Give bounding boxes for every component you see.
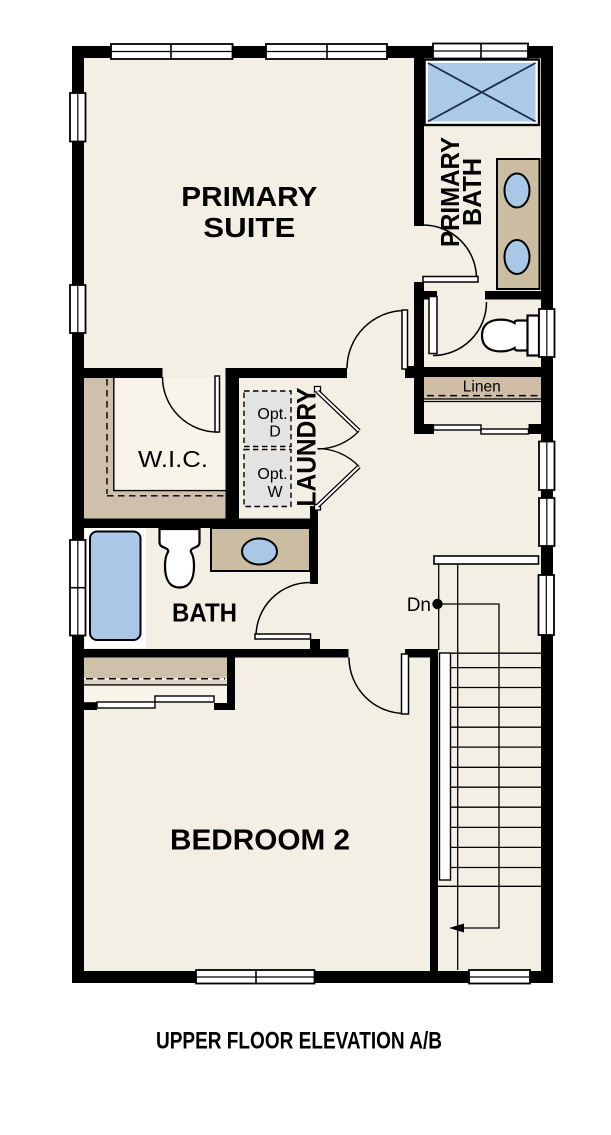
svg-text:LAUNDRY: LAUNDRY [292, 388, 322, 507]
svg-text:BATH: BATH [459, 158, 487, 226]
svg-text:BEDROOM 2: BEDROOM 2 [170, 825, 350, 857]
svg-text:W.I.C.: W.I.C. [138, 446, 208, 472]
svg-text:Dn: Dn [407, 595, 431, 616]
svg-text:Opt.: Opt. [257, 406, 287, 423]
svg-text:W: W [267, 484, 283, 501]
svg-text:PRIMARY: PRIMARY [181, 181, 317, 212]
svg-text:SUITE: SUITE [203, 212, 295, 243]
svg-text:Opt.: Opt. [257, 466, 287, 483]
svg-text:BATH: BATH [172, 598, 237, 628]
svg-text:UPPER FLOOR ELEVATION A/B: UPPER FLOOR ELEVATION A/B [156, 1028, 442, 1055]
svg-text:Linen: Linen [463, 379, 501, 396]
svg-text:D: D [269, 424, 281, 441]
